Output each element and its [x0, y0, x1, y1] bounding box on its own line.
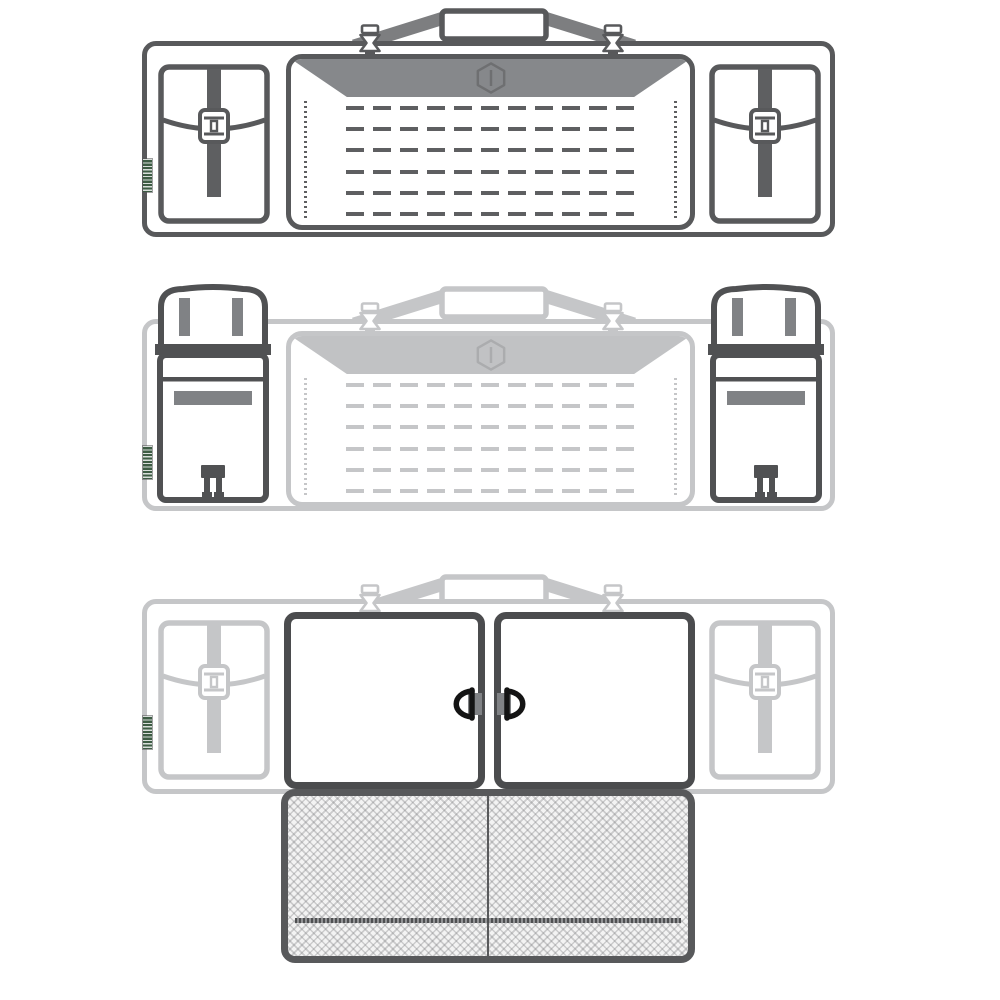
mesh-zipper-track	[295, 918, 681, 923]
view-doors-open-mesh	[0, 0, 1000, 1000]
d-ring-pull-icon	[444, 684, 482, 724]
illustration-canvas	[0, 0, 1000, 1000]
mesh-pocket	[281, 789, 695, 963]
mesh-center-seam	[487, 796, 490, 956]
d-ring-pull-icon	[497, 684, 535, 724]
brand-label	[143, 716, 152, 749]
accessory-pouch-left-faded	[158, 620, 270, 780]
accessory-pouch-right-faded	[709, 620, 821, 780]
